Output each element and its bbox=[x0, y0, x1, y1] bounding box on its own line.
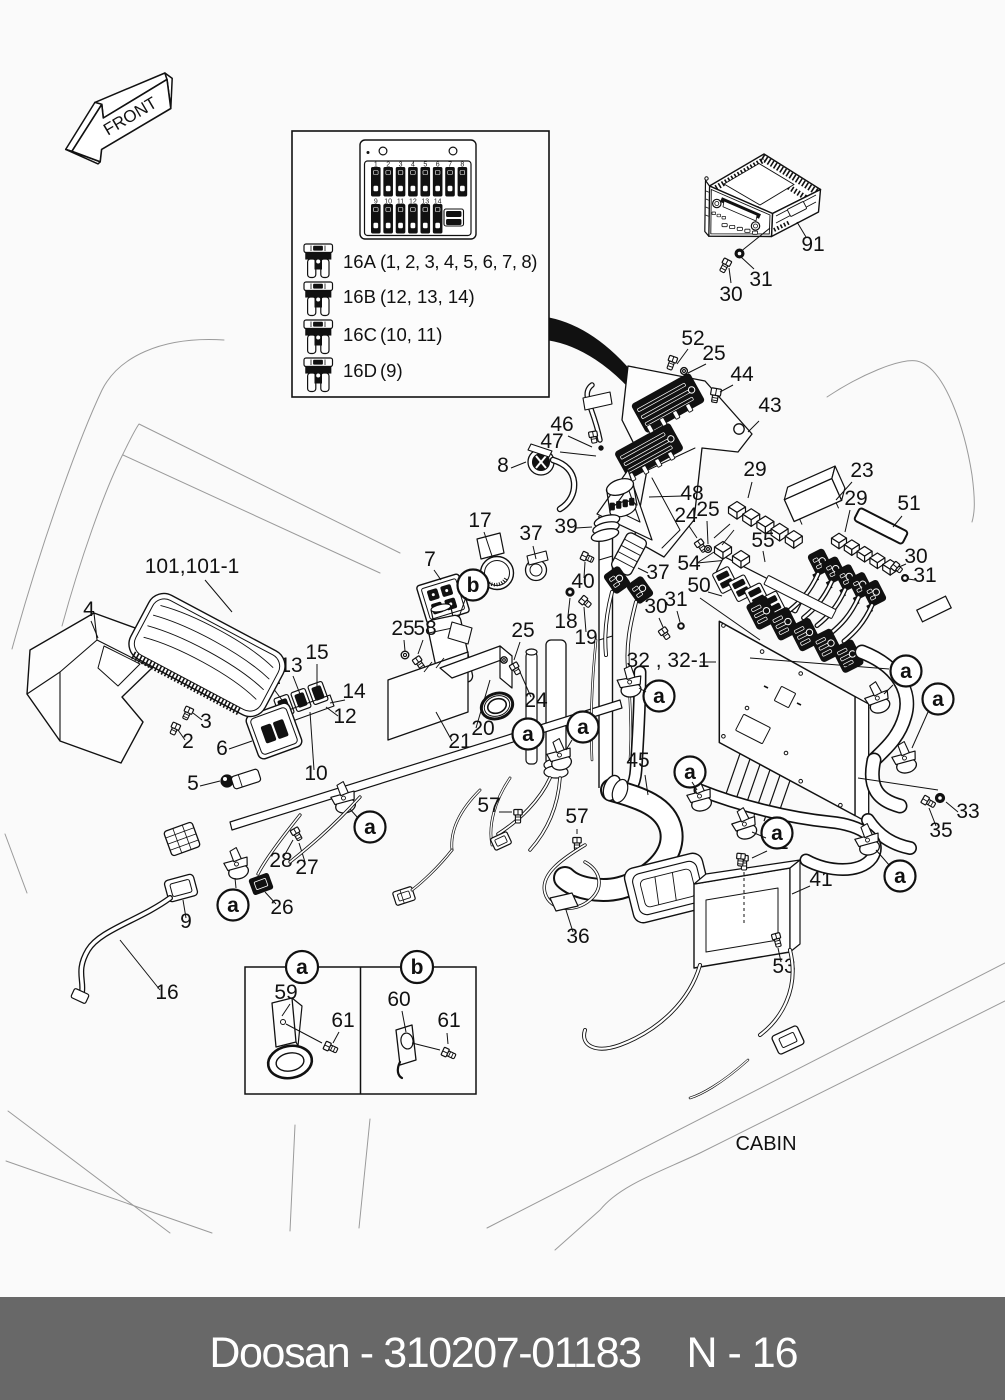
svg-text:a: a bbox=[684, 761, 696, 784]
svg-text:b: b bbox=[411, 956, 424, 979]
svg-text:a: a bbox=[227, 894, 239, 917]
svg-text:29: 29 bbox=[743, 458, 766, 481]
svg-text:16A: 16A bbox=[343, 251, 377, 272]
svg-text:2: 2 bbox=[182, 730, 194, 753]
svg-text:33: 33 bbox=[956, 800, 979, 823]
svg-text:8: 8 bbox=[497, 454, 509, 477]
svg-text:47: 47 bbox=[540, 430, 563, 453]
svg-text:16: 16 bbox=[155, 981, 178, 1004]
svg-text:29: 29 bbox=[844, 487, 867, 510]
svg-text:15: 15 bbox=[305, 641, 328, 664]
svg-text:a: a bbox=[894, 865, 906, 888]
svg-text:24: 24 bbox=[674, 504, 698, 527]
svg-text:17: 17 bbox=[468, 509, 491, 532]
svg-text:b: b bbox=[467, 574, 480, 597]
svg-text:N - 16: N - 16 bbox=[686, 1329, 797, 1377]
svg-text:10: 10 bbox=[304, 762, 327, 785]
svg-text:27: 27 bbox=[295, 856, 318, 879]
svg-text:37: 37 bbox=[519, 522, 542, 545]
svg-text:36: 36 bbox=[566, 925, 589, 948]
svg-text:a: a bbox=[364, 816, 376, 839]
svg-text:40: 40 bbox=[571, 570, 594, 593]
svg-text:23: 23 bbox=[850, 459, 873, 482]
svg-text:44: 44 bbox=[730, 363, 754, 386]
svg-text:31: 31 bbox=[749, 268, 772, 291]
svg-text:26: 26 bbox=[270, 896, 293, 919]
svg-text:45: 45 bbox=[626, 749, 649, 772]
svg-text:54: 54 bbox=[677, 552, 701, 575]
svg-text:14: 14 bbox=[342, 680, 366, 703]
svg-text:61: 61 bbox=[331, 1009, 354, 1032]
svg-text:a: a bbox=[932, 688, 944, 711]
svg-text:91: 91 bbox=[801, 233, 824, 256]
svg-text:30: 30 bbox=[719, 283, 742, 306]
svg-text:16C: 16C bbox=[343, 324, 377, 345]
svg-text:a: a bbox=[522, 723, 534, 746]
svg-text:(12, 13, 14): (12, 13, 14) bbox=[380, 286, 475, 307]
svg-text:(1, 2, 3, 4, 5, 6, 7, 8): (1, 2, 3, 4, 5, 6, 7, 8) bbox=[380, 251, 537, 272]
svg-text:25: 25 bbox=[702, 342, 725, 365]
svg-text:3: 3 bbox=[200, 710, 212, 733]
svg-text:101,101-1: 101,101-1 bbox=[145, 555, 240, 578]
svg-text:32 , 32-1: 32 , 32-1 bbox=[627, 649, 710, 672]
svg-text:25: 25 bbox=[696, 498, 719, 521]
svg-text:Doosan - 310207-01183: Doosan - 310207-01183 bbox=[209, 1329, 641, 1377]
svg-text:60: 60 bbox=[387, 988, 410, 1011]
svg-text:5: 5 bbox=[187, 772, 199, 795]
svg-text:61: 61 bbox=[437, 1009, 460, 1032]
svg-text:50: 50 bbox=[687, 574, 710, 597]
svg-text:CABIN: CABIN bbox=[735, 1133, 796, 1155]
svg-text:35: 35 bbox=[929, 819, 952, 842]
svg-text:59: 59 bbox=[274, 981, 297, 1004]
svg-text:31: 31 bbox=[913, 564, 936, 587]
svg-text:a: a bbox=[296, 956, 308, 979]
svg-text:a: a bbox=[771, 822, 783, 845]
svg-text:4: 4 bbox=[83, 598, 95, 621]
svg-text:a: a bbox=[653, 685, 665, 708]
svg-text:37: 37 bbox=[646, 561, 669, 584]
svg-text:58: 58 bbox=[413, 617, 436, 640]
svg-text:57: 57 bbox=[477, 794, 500, 817]
svg-text:9: 9 bbox=[180, 910, 192, 933]
svg-text:25: 25 bbox=[391, 617, 414, 640]
svg-text:52: 52 bbox=[681, 327, 704, 350]
svg-text:39: 39 bbox=[554, 515, 577, 538]
svg-text:12: 12 bbox=[333, 705, 356, 728]
svg-text:20: 20 bbox=[471, 717, 494, 740]
svg-text:43: 43 bbox=[758, 394, 781, 417]
svg-text:25: 25 bbox=[511, 619, 534, 642]
svg-text:a: a bbox=[577, 716, 589, 739]
svg-text:(10, 11): (10, 11) bbox=[380, 324, 442, 345]
svg-text:31: 31 bbox=[664, 588, 687, 611]
svg-text:(9): (9) bbox=[380, 360, 403, 381]
svg-text:7: 7 bbox=[424, 548, 436, 571]
svg-text:a: a bbox=[900, 660, 912, 683]
svg-text:24: 24 bbox=[524, 689, 548, 712]
svg-text:57: 57 bbox=[565, 805, 588, 828]
svg-text:51: 51 bbox=[897, 492, 920, 515]
svg-text:16D: 16D bbox=[343, 360, 377, 381]
svg-text:6: 6 bbox=[216, 737, 228, 760]
svg-text:16B: 16B bbox=[343, 286, 376, 307]
svg-text:55: 55 bbox=[751, 529, 774, 552]
